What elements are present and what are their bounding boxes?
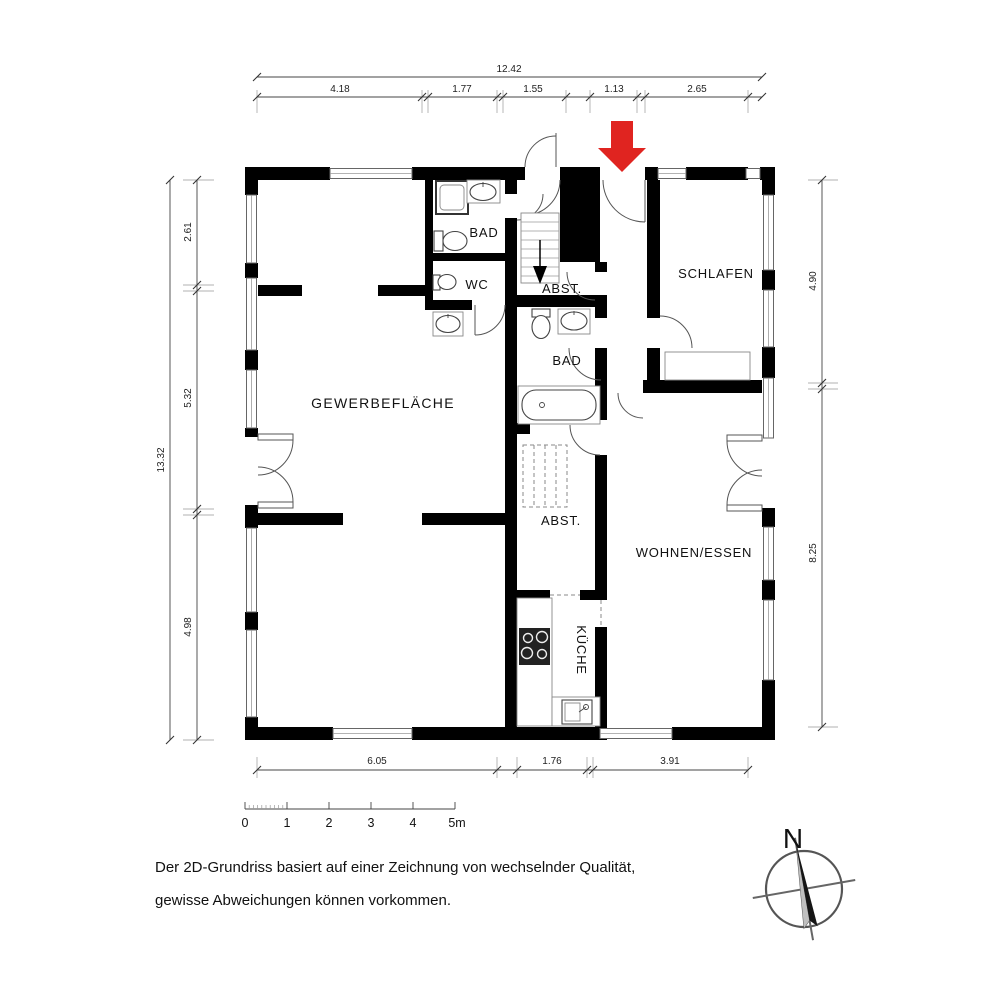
- scale-label-3: 3: [368, 816, 375, 830]
- disclaimer-line-2: gewisse Abweichungen können vorkommen.: [155, 892, 451, 909]
- compass: N: [744, 823, 864, 949]
- room-label-bad-mid: BAD: [552, 353, 581, 368]
- dimensions-bottom: 6.05 1.76 3.91: [253, 756, 752, 778]
- stair-entry-door-arc: [525, 136, 556, 167]
- bathroom-top-fixtures: [434, 180, 500, 251]
- scale-label-5m: 5m: [448, 816, 465, 830]
- dimensions-left: 13.32 2.61 5.32 4.98: [156, 176, 214, 744]
- room-label-wohnen-essen: WOHNEN/ESSEN: [636, 545, 753, 560]
- room-label-bad-top: BAD: [469, 225, 498, 240]
- scale-label-4: 4: [410, 816, 417, 830]
- dim-left-seg-2: 5.32: [183, 388, 194, 408]
- dimensions-right: 4.90 8.25: [808, 176, 838, 731]
- floor-plan-page: GEWERBEFLÄCHE BAD WC ABST. SCHLAFEN BAD …: [0, 0, 1000, 1000]
- french-door-right-leaf-bottom: [727, 505, 762, 511]
- scale-label-2: 2: [326, 816, 333, 830]
- disclaimer-line-1: Der 2D-Grundriss basiert auf einer Zeich…: [155, 859, 635, 876]
- dim-bottom-seg-3: 3.91: [660, 756, 680, 767]
- entrance-arrow-shaft: [611, 121, 633, 148]
- scale-bar: 0 1 2 3 4 5m: [242, 802, 466, 830]
- toilet-icon: [434, 231, 443, 251]
- disclaimer: Der 2D-Grundriss basiert auf einer Zeich…: [155, 859, 635, 909]
- room-label-kueche: KÜCHE: [574, 625, 589, 675]
- dim-top-seg-2: 1.77: [452, 84, 472, 95]
- entrance-arrow-head: [598, 148, 646, 172]
- wardrobe: [665, 352, 750, 380]
- dim-top-seg-3: 1.55: [523, 84, 543, 95]
- floor-plan-drawing: GEWERBEFLÄCHE BAD WC ABST. SCHLAFEN BAD …: [0, 0, 1000, 1000]
- french-door-left-leaf-bottom: [258, 502, 293, 508]
- scale-label-0: 0: [242, 816, 249, 830]
- entrance-arrow: [598, 121, 646, 172]
- dim-left-total: 13.32: [156, 447, 167, 472]
- dim-left-seg-1: 2.61: [183, 222, 194, 242]
- dim-bottom-seg-1: 6.05: [367, 756, 387, 767]
- dim-top-total: 12.42: [496, 64, 521, 75]
- entrance-door-arc: [603, 180, 645, 222]
- storage-door-arc: [570, 425, 600, 455]
- room-label-wc: WC: [465, 277, 488, 292]
- french-door-right-leaf-top: [727, 435, 762, 441]
- dim-bottom-seg-2: 1.76: [542, 756, 562, 767]
- bedroom-door-arc: [660, 316, 692, 348]
- wc-lobby-door-arc: [475, 305, 505, 335]
- scale-label-1: 1: [284, 816, 291, 830]
- french-door-left-arc-top: [258, 440, 293, 475]
- dim-top-seg-5: 2.65: [687, 84, 707, 95]
- dim-top-seg-1: 4.18: [330, 84, 350, 95]
- dim-right-seg-1: 4.90: [808, 271, 819, 291]
- compass-north-label: N: [783, 823, 803, 854]
- room-label-abst-stairs: ABST.: [542, 281, 582, 296]
- room-label-schlafen: SCHLAFEN: [678, 266, 754, 281]
- bedroom-furniture: [665, 352, 750, 380]
- dimensions-top: 12.42 4.18 1.77 1.55 1.13 2.65: [253, 64, 766, 113]
- french-door-left-leaf-top: [258, 434, 293, 440]
- living-door-arc: [618, 393, 643, 418]
- dim-left-seg-3: 4.98: [183, 617, 194, 637]
- room-label-gewerbeflaeche: GEWERBEFLÄCHE: [311, 395, 455, 411]
- staircase: [521, 213, 559, 284]
- room-label-abst-storage: ABST.: [541, 513, 581, 528]
- interior-walls: [258, 180, 762, 740]
- french-door-left-arc-bottom: [258, 467, 293, 502]
- compass-needle-light: [789, 844, 811, 929]
- dim-top-seg-4: 1.13: [604, 84, 624, 95]
- dim-right-seg-2: 8.25: [808, 543, 819, 563]
